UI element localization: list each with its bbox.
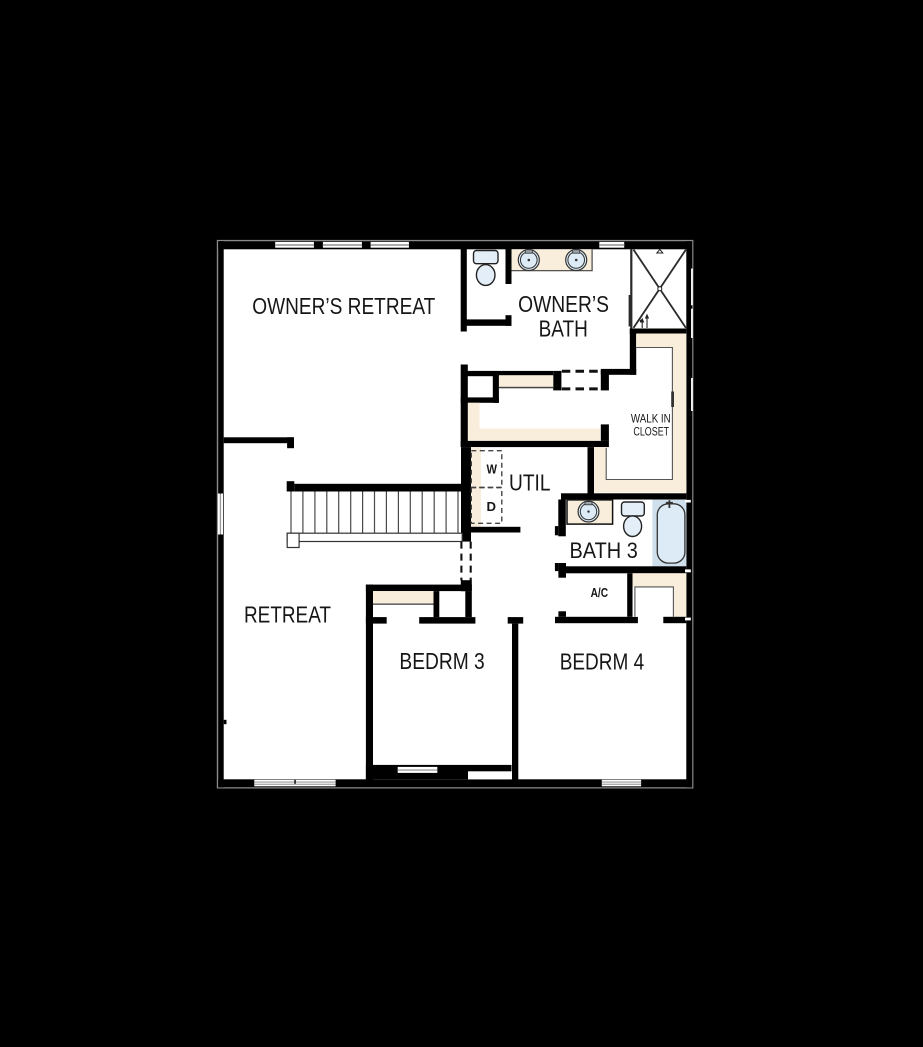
svg-text:WALK IN: WALK IN <box>631 413 671 425</box>
svg-text:CLOSET: CLOSET <box>633 426 669 438</box>
svg-text:BEDRM 4: BEDRM 4 <box>560 648 645 674</box>
svg-text:BATH 3: BATH 3 <box>570 538 638 563</box>
svg-text:D: D <box>487 500 497 514</box>
svg-text:W: W <box>486 463 497 477</box>
svg-text:RETREAT: RETREAT <box>244 601 331 627</box>
svg-text:BEDRM 3: BEDRM 3 <box>399 648 484 674</box>
svg-text:OWNER’S: OWNER’S <box>518 291 609 317</box>
svg-text:OWNER’S RETREAT: OWNER’S RETREAT <box>252 293 435 319</box>
svg-text:BATH: BATH <box>539 316 588 342</box>
svg-text:A/C: A/C <box>591 585 609 600</box>
svg-text:UTIL: UTIL <box>509 470 551 496</box>
